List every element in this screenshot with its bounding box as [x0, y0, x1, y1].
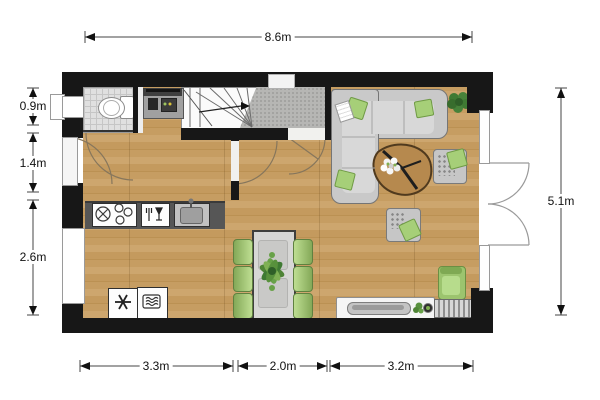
- sideboard-plant-icon: [413, 303, 433, 314]
- up-arrow-icon: [199, 102, 250, 112]
- cutlery-icon: [147, 208, 163, 221]
- floor-plan-canvas: 8.6m 5.1m 0.9m 1.4m 2.6m 3.3m 2.0m 3.2m: [0, 0, 600, 400]
- kitchen-window: [62, 228, 85, 304]
- front-door-left: [62, 137, 78, 186]
- dim-left-label-1: 0.9m: [17, 99, 50, 113]
- right-wall-top-block: [467, 72, 493, 113]
- right-window-lower: [479, 245, 490, 291]
- left-wall-segment-3: [62, 183, 83, 229]
- entry-side-wall: [325, 87, 331, 140]
- hall-wall-stub-bottom: [231, 181, 239, 200]
- faucet-icon: [189, 199, 194, 209]
- coffee-machine-detail: [146, 89, 180, 106]
- right-window-upper: [479, 110, 490, 164]
- dim-bottom-label-3: 3.2m: [385, 359, 418, 373]
- line-art-overlay: [0, 0, 600, 400]
- left-wall-segment-1: [62, 72, 83, 97]
- cooktop-burners: [96, 204, 132, 224]
- oven-wave-icon: [143, 295, 160, 308]
- dim-bottom-label-1: 3.3m: [140, 359, 173, 373]
- bathroom-side-wall: [133, 87, 138, 133]
- right-wall-bottom-block: [471, 288, 493, 333]
- dim-left-label-2: 1.4m: [17, 156, 50, 170]
- dim-right-label: 5.1m: [545, 194, 578, 208]
- dim-bottom-label-2: 2.0m: [267, 359, 300, 373]
- bathroom-window: [62, 96, 84, 118]
- door-swing-icon: [65, 133, 529, 245]
- hall-wall-stub-top: [231, 128, 239, 141]
- dim-top-label: 8.6m: [262, 30, 295, 44]
- front-door-top-niche: [268, 74, 295, 89]
- bottom-wall: [62, 318, 492, 333]
- hall-door-opening: [231, 141, 239, 181]
- coffee-table-icon: [373, 145, 431, 195]
- dim-left-label-3: 2.6m: [17, 250, 50, 264]
- freezer-asterisk-icon: [115, 295, 131, 309]
- left-wall-segment-2: [62, 116, 83, 138]
- entry-door-opening: [288, 128, 325, 140]
- left-wall-segment-4: [62, 301, 83, 333]
- dining-plant-icon: [258, 252, 286, 291]
- bathroom-bottom-line: [83, 130, 133, 132]
